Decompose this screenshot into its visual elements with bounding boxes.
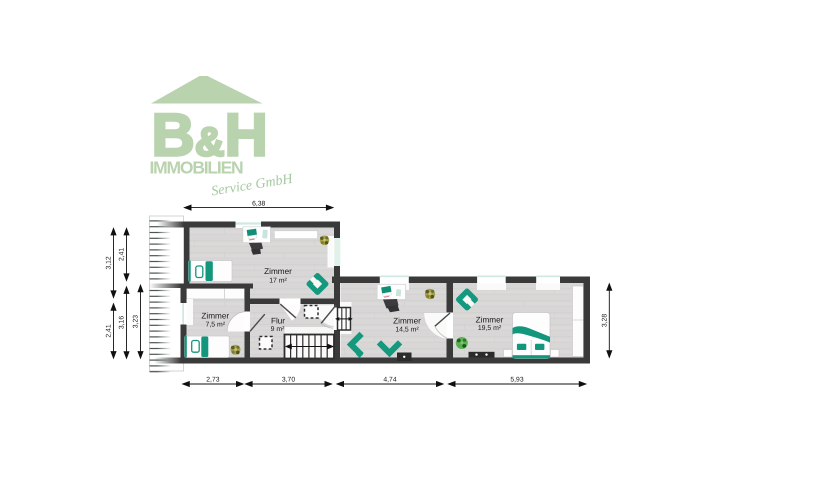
svg-text:Zimmer: Zimmer: [393, 316, 421, 325]
svg-text:3,28: 3,28: [601, 314, 608, 327]
svg-text:Flur: Flur: [271, 316, 285, 325]
svg-text:4,74: 4,74: [383, 376, 396, 383]
svg-text:2,41: 2,41: [119, 248, 126, 261]
svg-text:14,5 m²: 14,5 m²: [395, 326, 419, 333]
svg-text:IMMOBILIEN: IMMOBILIEN: [150, 158, 244, 178]
svg-text:17 m²: 17 m²: [269, 278, 287, 285]
svg-text:3,70: 3,70: [282, 376, 295, 383]
svg-text:5,93: 5,93: [510, 376, 523, 383]
svg-text:2,41: 2,41: [106, 324, 113, 337]
svg-text:9 m²: 9 m²: [271, 326, 285, 333]
svg-text:7,5 m²: 7,5 m²: [206, 321, 226, 328]
svg-text:Zimmer: Zimmer: [264, 267, 292, 276]
svg-text:Zimmer: Zimmer: [201, 311, 229, 320]
svg-text:3,23: 3,23: [133, 315, 140, 328]
svg-text:2,73: 2,73: [206, 376, 219, 383]
svg-text:Zimmer: Zimmer: [476, 315, 504, 324]
svg-text:3,12: 3,12: [106, 256, 113, 269]
svg-text:19,5 m²: 19,5 m²: [478, 325, 502, 332]
svg-text:6,38: 6,38: [252, 200, 265, 207]
svg-text:3,16: 3,16: [119, 316, 126, 329]
